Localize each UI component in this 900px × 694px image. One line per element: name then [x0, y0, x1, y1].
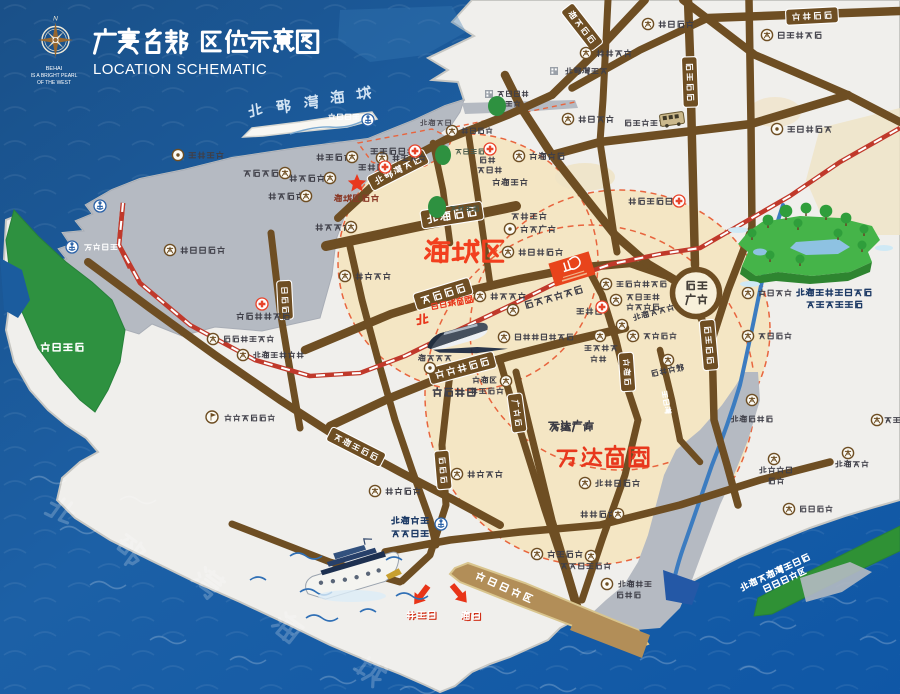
svg-text:LOCATION SCHEMATIC: LOCATION SCHEMATIC — [93, 61, 267, 78]
svg-text:OF THE WEST: OF THE WEST — [37, 80, 71, 86]
svg-text:BEHAI: BEHAI — [46, 66, 63, 72]
svg-text:IS A BRIGHT PEARL: IS A BRIGHT PEARL — [31, 73, 78, 79]
svg-text:N: N — [53, 16, 58, 23]
